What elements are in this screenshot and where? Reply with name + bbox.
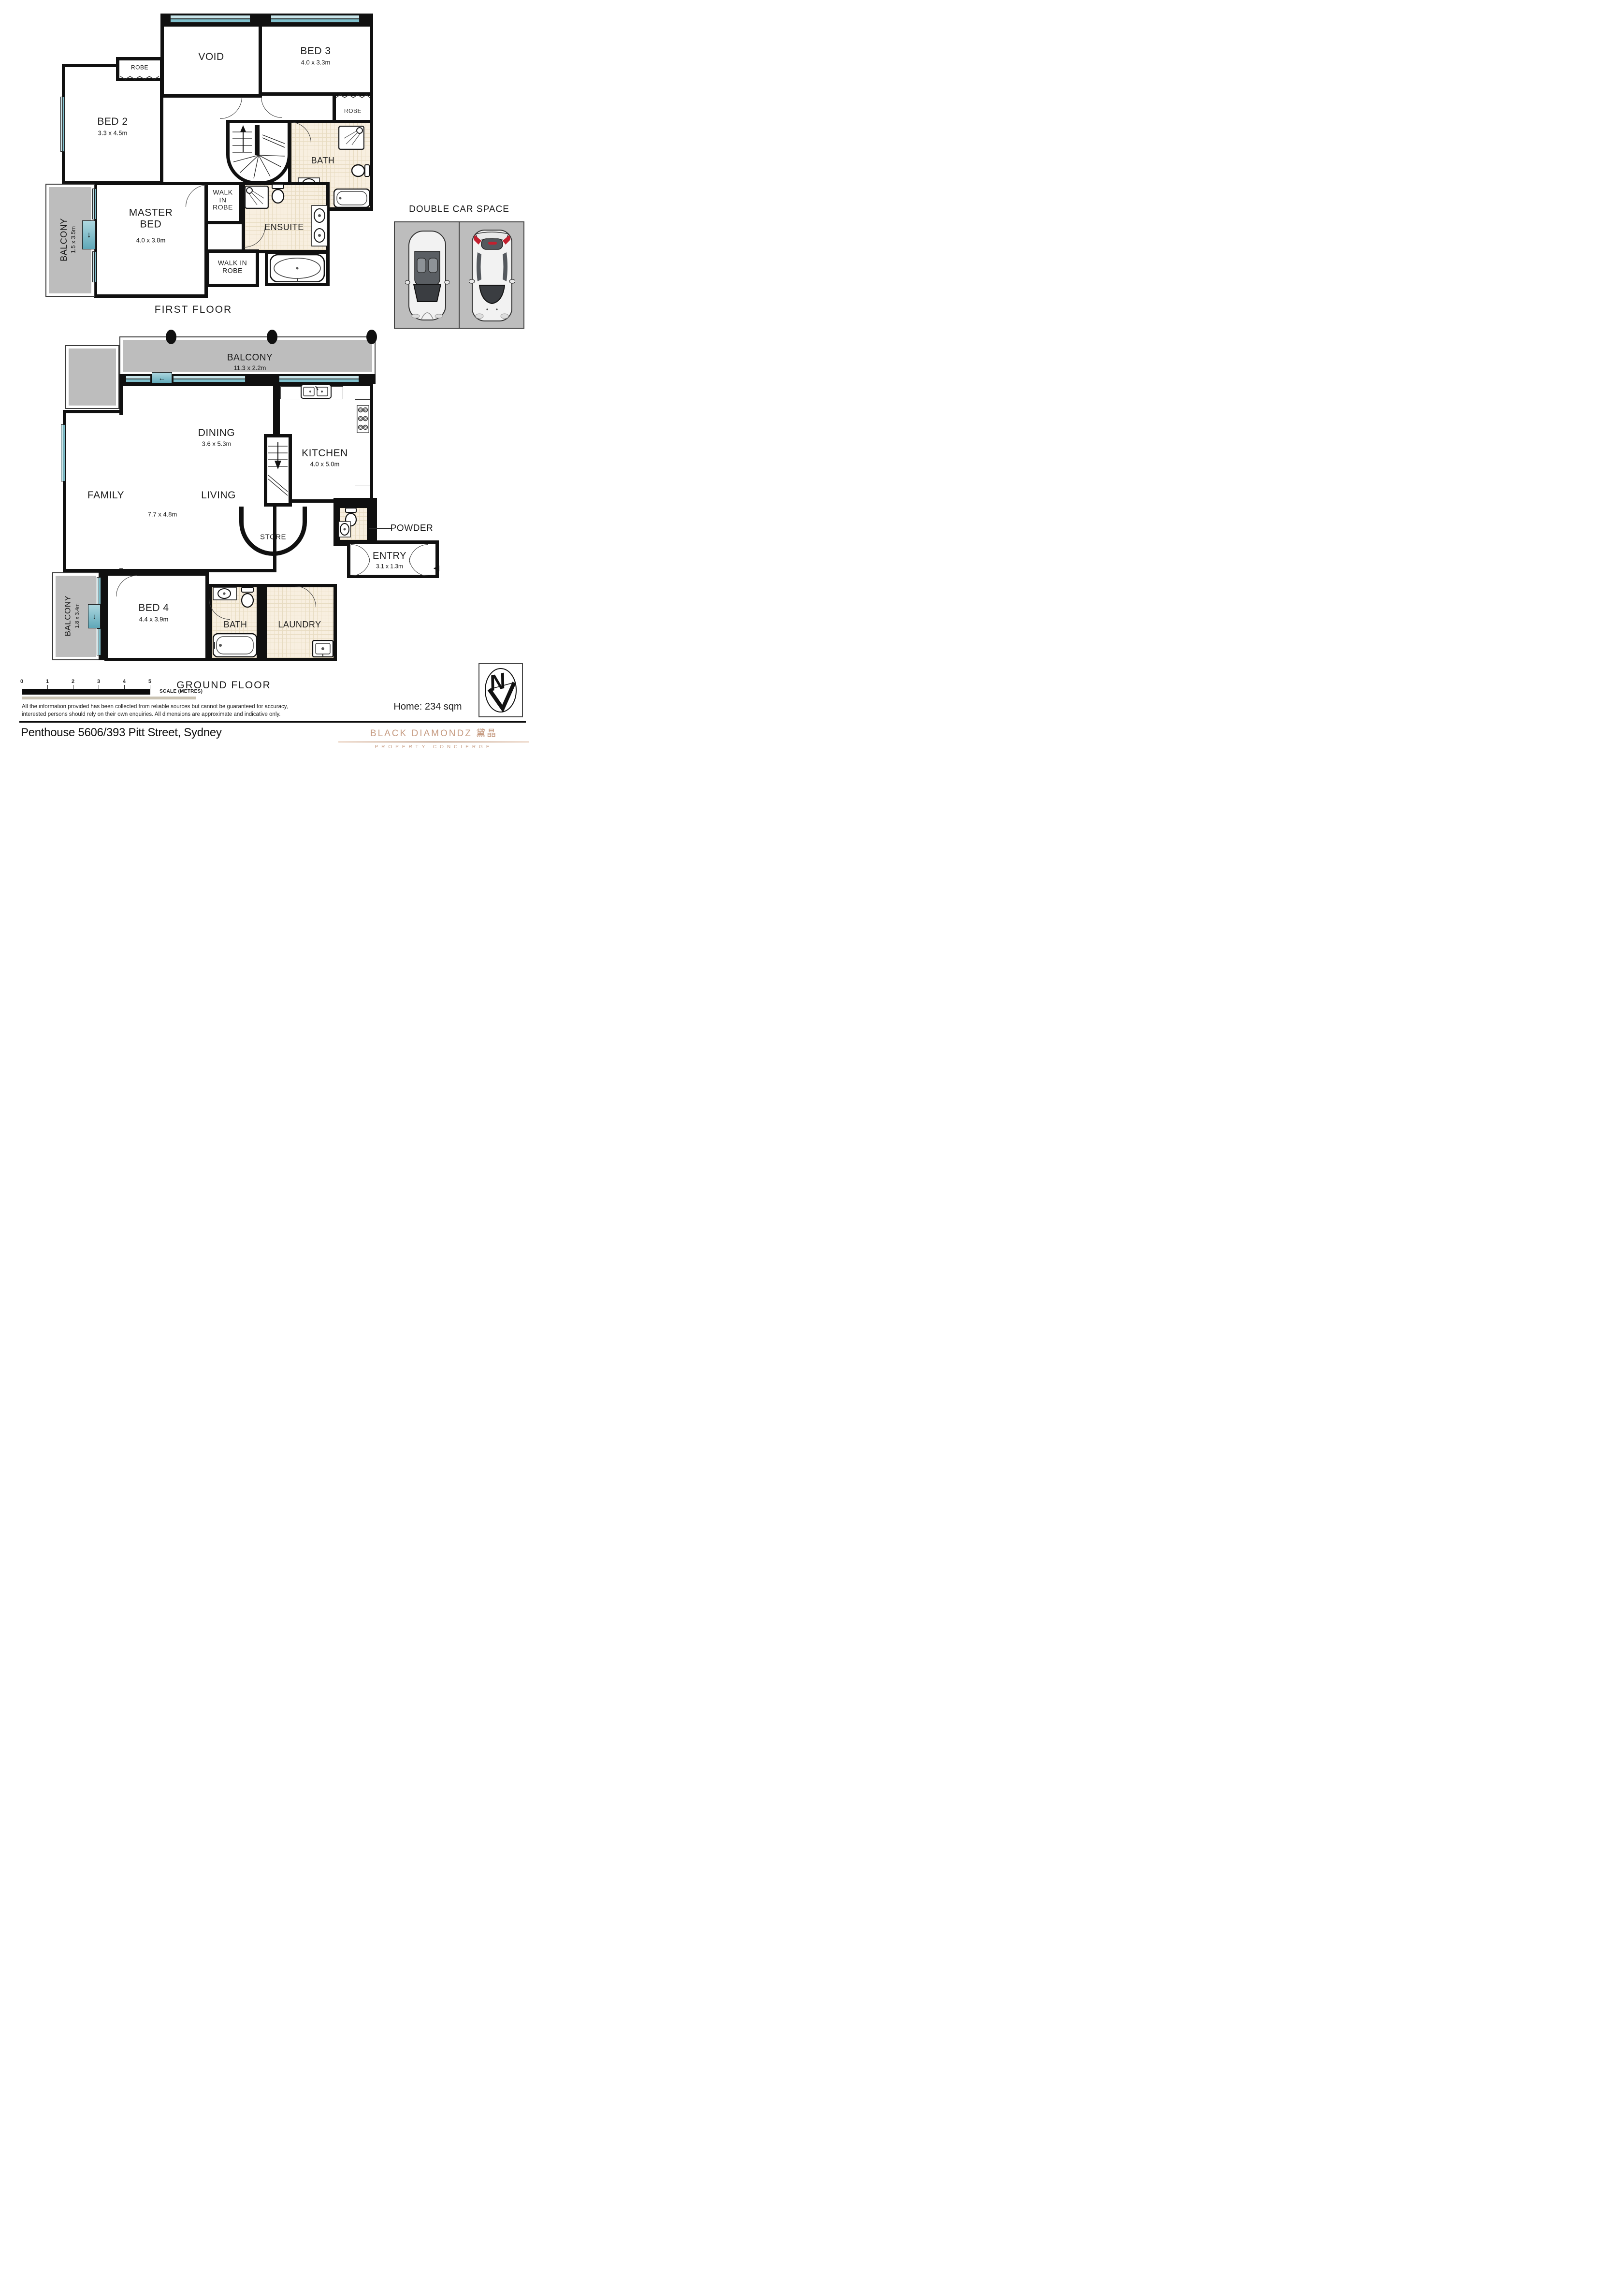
window: [97, 628, 101, 655]
scale-tick-line: [47, 685, 48, 689]
door-arrow-icon: ←: [159, 374, 166, 382]
room-label-robe3: ROBE: [344, 108, 362, 114]
room-dims-master: 4.0 x 3.8m: [136, 237, 166, 245]
room-label-balcony-ff: BALCONY: [59, 218, 69, 262]
freestanding-bathtub-icon: [270, 254, 325, 282]
window: [271, 15, 360, 23]
laundry-tub-icon: [312, 640, 333, 657]
scale-tick-line: [150, 685, 150, 689]
double-basin-icon: [311, 205, 328, 247]
room-label-living: LIVING: [201, 490, 236, 501]
room-label-master: MASTER BED: [119, 207, 182, 230]
room-label-laundry: LAUNDRY: [278, 620, 321, 629]
stairs-icon: [231, 124, 287, 180]
disclaimer-line-2: interested persons should rely on their …: [22, 712, 280, 717]
room-label-balcony-left: BALCONY: [63, 596, 72, 637]
room-label-bath-ground: BATH: [224, 620, 247, 629]
address-text: Penthouse 5606/393 Pitt Street, Sydney: [21, 726, 222, 740]
brand-rule: [338, 741, 529, 742]
room-label-kitchen: KITCHEN: [302, 448, 348, 459]
room-dims-living: 7.7 x 4.8m: [148, 511, 177, 519]
column-icon: [166, 330, 176, 344]
north-arrow-icon: N: [479, 664, 522, 716]
footer-divider: [19, 721, 526, 723]
room-dims-balcony-left: 1.8 x 3.4m: [74, 603, 80, 628]
scale-tick-line: [99, 685, 99, 689]
room-label-ensuite: ENSUITE: [264, 222, 304, 232]
room-dims-bed4: 4.4 x 3.9m: [139, 616, 169, 624]
window: [170, 15, 250, 23]
column-icon: [267, 330, 277, 344]
toilet-icon: [240, 587, 255, 608]
toilet-icon: [271, 184, 285, 204]
bathtub-icon: [213, 633, 257, 657]
room-label-bed4: BED 4: [138, 602, 169, 614]
scale-tick-5: 5: [148, 679, 151, 684]
sliding-door: ↓: [88, 604, 101, 628]
scale-tick-2: 2: [72, 679, 74, 684]
scale-tick-line: [124, 685, 125, 689]
cooktop-icon: [357, 405, 369, 433]
window: [61, 424, 65, 481]
room-label-wir-lower: WALK IN ROBE: [211, 259, 254, 274]
room-label-bath-first: BATH: [311, 156, 335, 165]
scale-tick-0: 0: [20, 679, 23, 684]
robe-rail-icon: [120, 75, 159, 80]
window: [126, 376, 151, 382]
stairs-first-floor: [226, 120, 291, 185]
car-space-divider: [459, 222, 460, 328]
sliding-door: ↓: [82, 220, 96, 249]
window: [97, 577, 101, 604]
stairs-ground-floor: [264, 434, 292, 507]
room-label-bed2: BED 2: [97, 116, 128, 128]
robe-rail-icon: [335, 94, 370, 99]
stairs-icon: [267, 438, 289, 506]
brand-block: BLACK DIAMONDZ 黛晶 PROPERTY CONCIERGE: [338, 726, 529, 750]
shower-icon: [338, 126, 364, 150]
scale-tick-line: [73, 685, 73, 689]
scale-tick-1: 1: [46, 679, 49, 684]
room-dims-balcony-ff: 1.5 x 3.5m: [70, 226, 76, 253]
room-label-void: VOID: [198, 51, 224, 63]
north-indicator: N: [478, 663, 523, 717]
window: [92, 189, 97, 219]
toilet-icon: [351, 163, 370, 178]
room-label-wir-upper: WALK IN ROBE: [209, 189, 237, 211]
car-space-title: DOUBLE CAR SPACE: [409, 204, 509, 214]
room-label-entry: ENTRY: [373, 551, 406, 561]
basin-icon: [338, 521, 351, 538]
shower-icon: [245, 186, 269, 209]
room-label-family: FAMILY: [87, 490, 124, 501]
disclaimer-line-1: All the information provided has been co…: [22, 704, 288, 710]
room-label-powder: POWDER: [391, 523, 434, 533]
bathtub-icon: [333, 189, 370, 208]
home-area-text: Home: 234 sqm: [393, 701, 462, 712]
window: [279, 376, 359, 382]
brand-name: BLACK DIAMONDZ 黛晶: [338, 726, 529, 739]
door-arc: [261, 97, 282, 118]
kitchen-sink-icon: [301, 384, 332, 399]
room-dims-dining: 3.6 x 5.3m: [202, 441, 232, 448]
entry-arrow-icon: ◀: [434, 564, 440, 573]
convertible-car-icon: [405, 228, 449, 323]
floorplan-page: ↓ VOID BED 3 4.0 x 3.3m ROBE ROBE BED 2 …: [0, 0, 541, 765]
scale-tick-line: [22, 685, 22, 689]
window: [92, 251, 97, 282]
room-label-balcony-top: BALCONY: [227, 352, 273, 363]
room-dims-bed3: 4.0 x 3.3m: [301, 59, 331, 67]
room-label-dining: DINING: [198, 427, 235, 439]
powder-leader-line: [369, 528, 391, 529]
door-arc: [220, 97, 242, 119]
sedan-car-icon: [469, 227, 515, 324]
window: [173, 376, 246, 382]
window: [60, 97, 65, 152]
column-icon: [366, 330, 377, 344]
room-dims-bed2: 3.3 x 4.5m: [98, 130, 128, 137]
balcony-ground-top-ext: [65, 345, 119, 409]
room-label-store: STORE: [260, 534, 286, 542]
room-label-robe2: ROBE: [131, 64, 148, 71]
scale-bar-black: [22, 689, 150, 695]
scale-bar-shadow: [22, 697, 196, 699]
scale-tick-4: 4: [123, 679, 126, 684]
room-label-bed3: BED 3: [300, 45, 331, 57]
brand-tagline: PROPERTY CONCIERGE: [338, 744, 529, 750]
scale-tick-3: 3: [97, 679, 100, 684]
door-arrow-icon: ↓: [87, 230, 91, 240]
sliding-door: ←: [152, 372, 172, 384]
room-dims-balcony-top: 11.3 x 2.2m: [234, 365, 266, 372]
room-dims-kitchen: 4.0 x 5.0m: [310, 461, 340, 468]
door-arrow-icon: ↓: [92, 612, 96, 621]
room-dims-entry: 3.1 x 1.3m: [376, 563, 403, 569]
scale-bar-label: SCALE (METRES): [159, 689, 203, 694]
first-floor-label: FIRST FLOOR: [155, 304, 232, 316]
